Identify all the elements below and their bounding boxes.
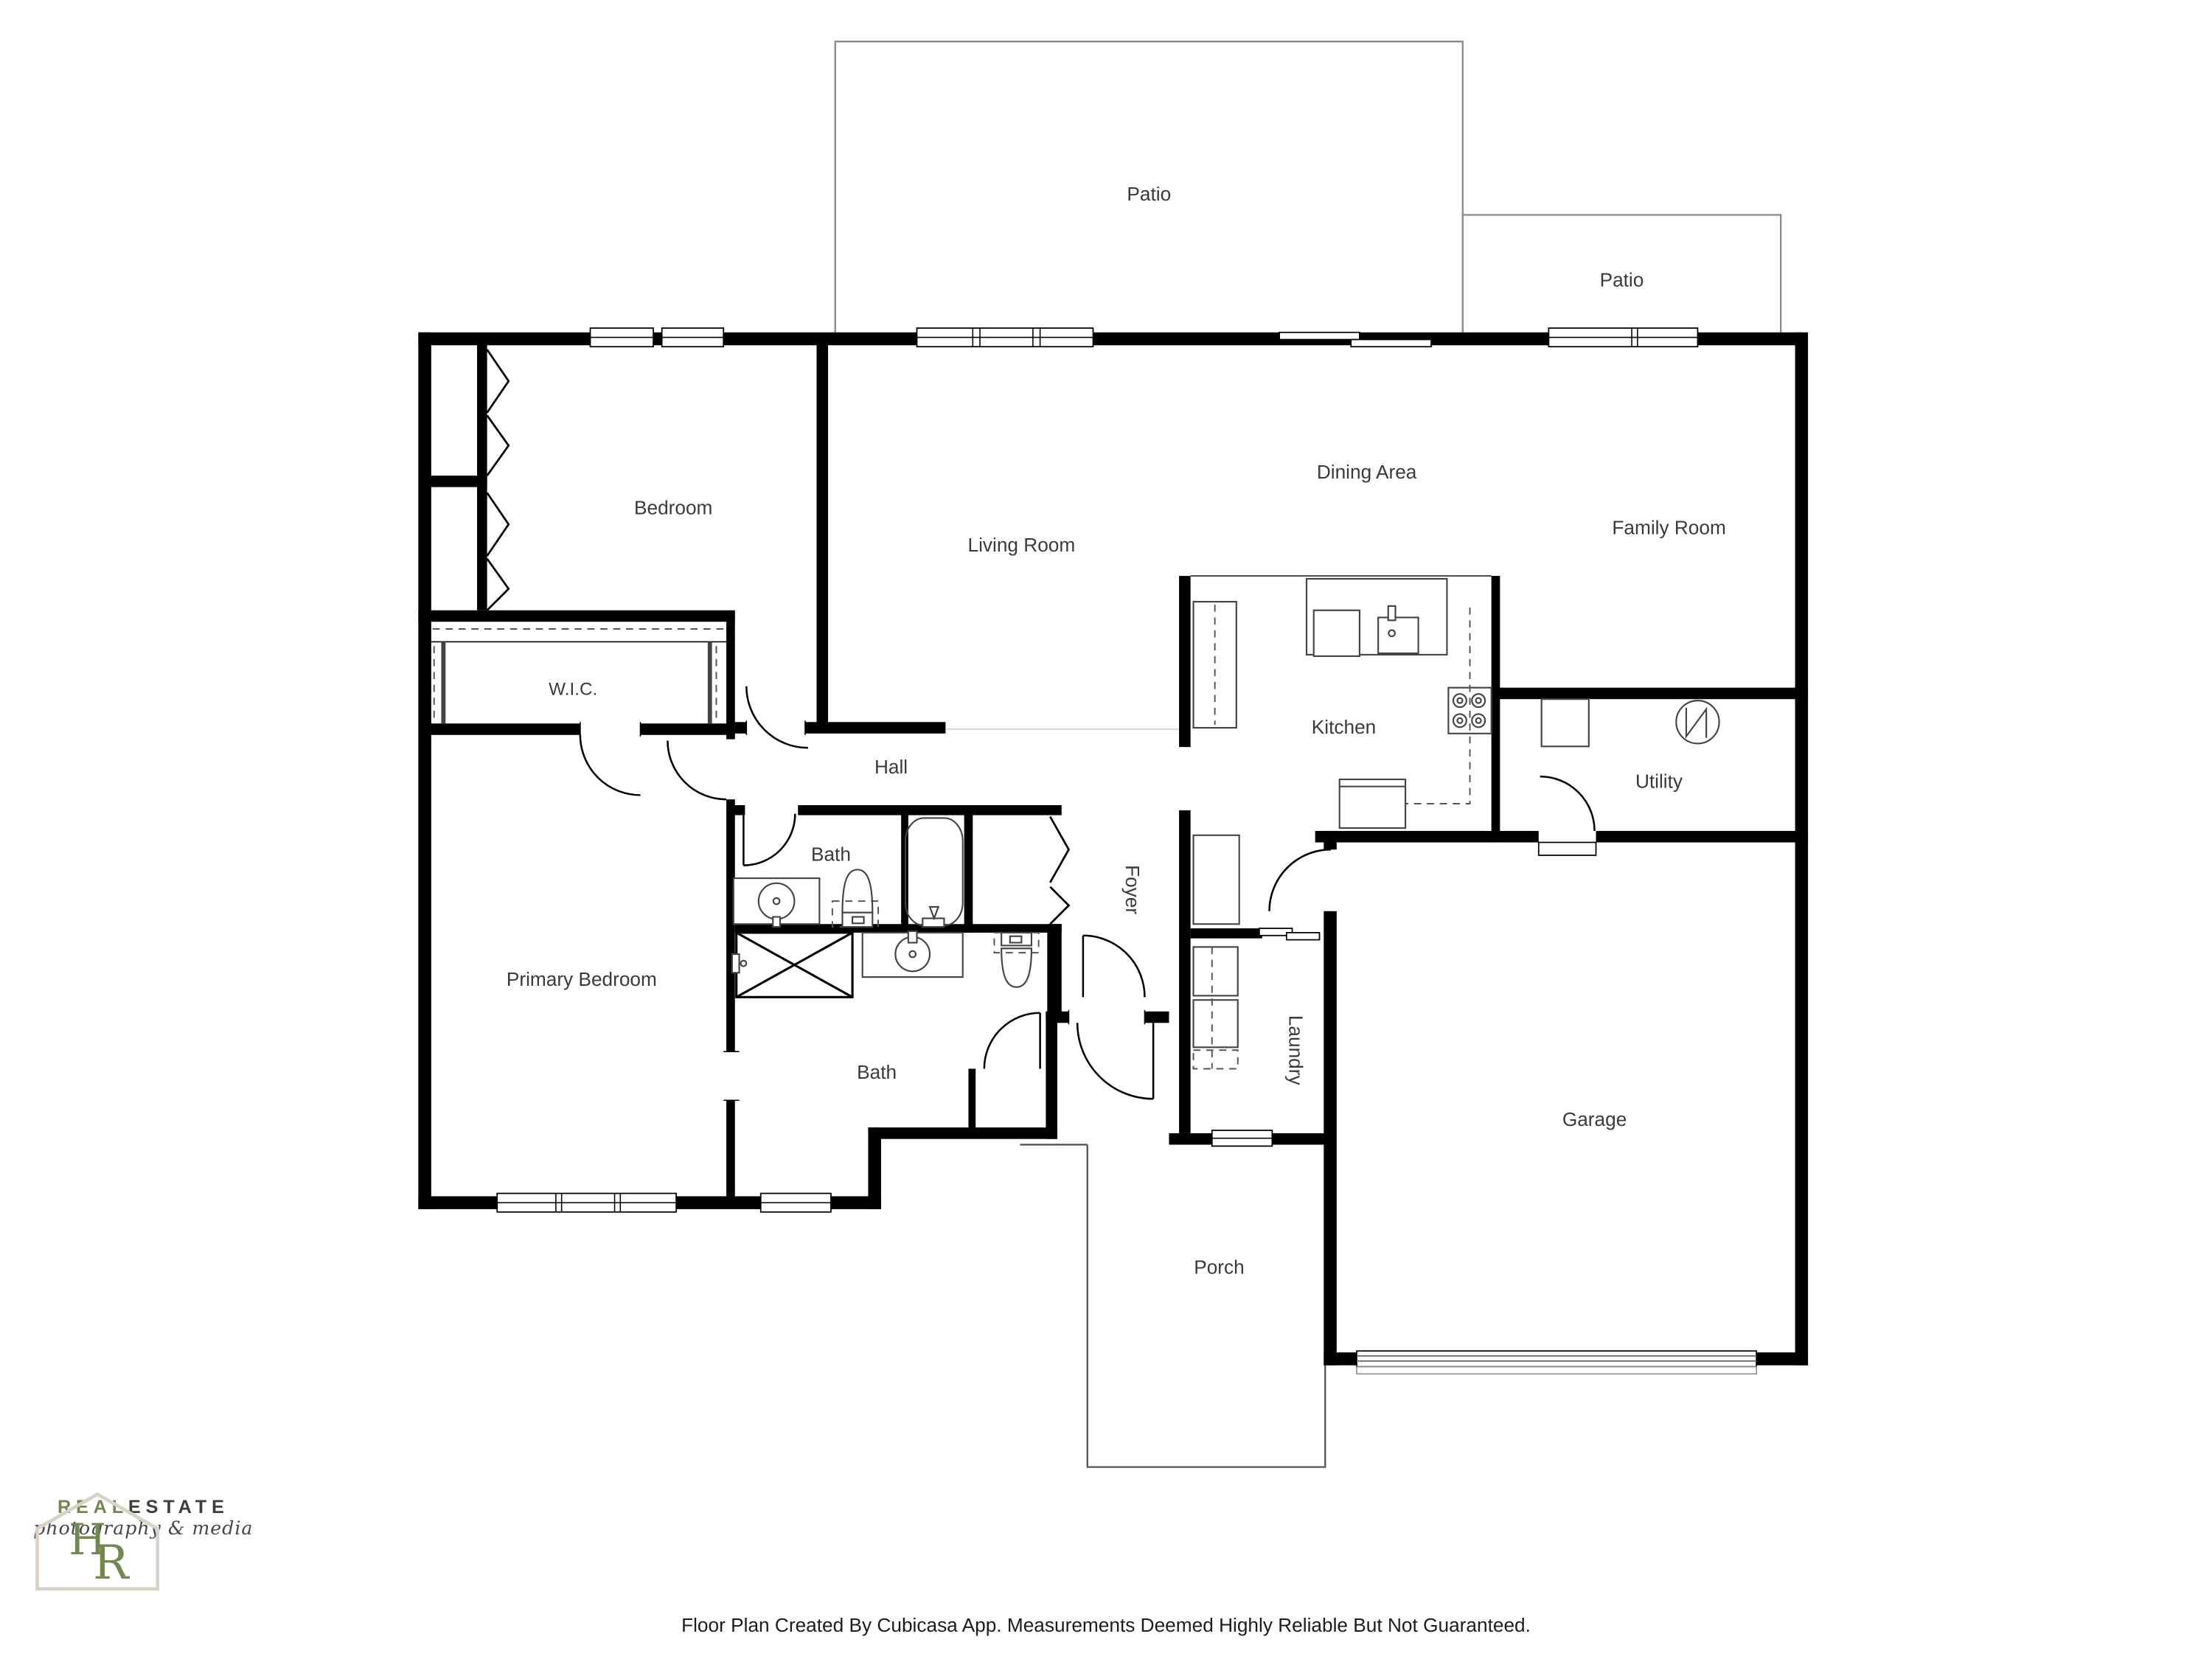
- bath1-door-opening: [745, 804, 798, 816]
- washer: [1194, 947, 1238, 995]
- kitchen-lower-cabinet: [1194, 835, 1239, 924]
- bedroom-door-opening: [746, 720, 805, 734]
- label-wic: W.I.C.: [549, 679, 597, 699]
- foyer-door-arc: [1083, 936, 1145, 998]
- wall-wic-right: [726, 616, 735, 733]
- ensuite-opening: [723, 1051, 737, 1100]
- patio-outlines: [835, 41, 1781, 338]
- interior-walls: [418, 344, 1262, 1197]
- label-living-room: Living Room: [967, 534, 1075, 556]
- wic-details: [430, 629, 726, 723]
- hall-bath-fixtures: [734, 818, 963, 927]
- bath1-door-arc: [743, 814, 795, 866]
- label-porch: Porch: [1194, 1256, 1245, 1278]
- wall-utility-top: [1492, 688, 1808, 700]
- shower: [732, 933, 852, 997]
- front-door-opening: [1068, 1010, 1144, 1024]
- wall-left: [418, 333, 431, 1209]
- label-patio-right: Patio: [1600, 269, 1644, 291]
- nook-door-arc: [984, 1013, 1040, 1069]
- wall-nook-small: [968, 1068, 975, 1133]
- logo-house-icon: H R: [29, 1490, 167, 1593]
- floor-plan-page: Patio Patio Bedroom Living Room Dining A…: [0, 0, 2212, 1659]
- bedroom-closet-door-2: [487, 415, 509, 476]
- bedroom-window-1: [591, 328, 653, 347]
- bath1-vanity: [734, 878, 820, 927]
- floor-plan-drawing: Patio Patio Bedroom Living Room Dining A…: [0, 0, 2212, 1659]
- foyer-closet-door-1: [1050, 817, 1068, 883]
- wall-right: [1795, 333, 1808, 1366]
- wall-step: [868, 1127, 880, 1209]
- wic-wall-left-thin: [441, 641, 445, 723]
- bathtub: [905, 818, 963, 927]
- hvac-unit-icon: [1676, 700, 1719, 743]
- wall-mid-bottom: [868, 1127, 1057, 1139]
- porch-edge: [1088, 1144, 1326, 1467]
- label-garage: Garage: [1562, 1108, 1627, 1130]
- front-door-arc: [1077, 1023, 1153, 1099]
- utility-door-arc: [1540, 776, 1595, 831]
- brand-logo: H R REALESTATE photography & media: [29, 1490, 258, 1540]
- wic-door-arc: [580, 735, 641, 796]
- bedroom-closet-door-3: [487, 493, 509, 555]
- logo-monogram-r: R: [93, 1535, 130, 1590]
- wall-bath1-right: [964, 814, 973, 933]
- kitchen-fixtures: [1191, 576, 1492, 924]
- wall-kitchen-right: [1492, 576, 1500, 842]
- dishwasher: [1314, 611, 1360, 656]
- label-laundry: Laundry: [1285, 1015, 1307, 1086]
- bedroom-closet-door-4: [487, 559, 509, 611]
- laundry-window: [1212, 1130, 1273, 1146]
- label-family-room: Family Room: [1612, 517, 1725, 539]
- garage-entry-opening: [1321, 849, 1339, 911]
- wall-closet-divider: [430, 476, 487, 487]
- bedroom-closet-door-1: [487, 349, 509, 412]
- utility-door-leaf: [1539, 842, 1596, 855]
- label-hall: Hall: [874, 756, 908, 778]
- wall-kitchen-left-upper: [1179, 576, 1191, 746]
- closet-doors: [487, 349, 1069, 924]
- primary-bath-fixtures: [732, 931, 1039, 997]
- wall-nook-right: [1047, 924, 1061, 1014]
- wic-wall-right-thin: [708, 641, 712, 723]
- living-window: [917, 328, 1093, 347]
- utility-fixtures: [1542, 699, 1719, 746]
- laundry-fixtures: [1194, 947, 1238, 1068]
- bath2-window: [761, 1194, 831, 1212]
- utility-door-opening: [1539, 829, 1596, 844]
- wic-door-opening: [580, 722, 641, 736]
- garage-door: [1357, 1351, 1756, 1374]
- label-patio-top: Patio: [1127, 183, 1171, 205]
- wall-foyer-laundry: [1179, 811, 1191, 1133]
- wall-alcove-left: [1046, 1012, 1057, 1139]
- label-dining-area: Dining Area: [1317, 461, 1417, 483]
- label-primary-bedroom: Primary Bedroom: [507, 968, 657, 990]
- bedroom-door-arc: [746, 686, 808, 748]
- label-bath-lower: Bath: [857, 1061, 897, 1083]
- label-kitchen: Kitchen: [1312, 716, 1376, 738]
- wall-bedroom-bottom: [418, 611, 734, 622]
- kitchen-pass-opening: [1179, 746, 1191, 810]
- primary-window: [497, 1194, 676, 1212]
- label-bath-hall: Bath: [811, 844, 851, 866]
- label-utility: Utility: [1635, 771, 1683, 793]
- bath2-vanity: [863, 931, 963, 977]
- label-foyer: Foyer: [1121, 865, 1144, 914]
- footer-disclaimer: Floor Plan Created By Cubicasa App. Meas…: [0, 1615, 2212, 1636]
- kitchen-peninsula: [1340, 779, 1405, 828]
- wall-bath-divider: [735, 924, 1062, 933]
- bath1-toilet: [832, 869, 878, 927]
- water-heater-box: [1542, 699, 1589, 746]
- porch-outline: [1020, 1144, 1325, 1467]
- label-bedroom: Bedroom: [634, 497, 712, 519]
- wall-laundry-top: [1191, 928, 1262, 939]
- family-window: [1548, 328, 1697, 347]
- bedroom-window-2: [662, 328, 724, 347]
- foyer-closet-door-2: [1050, 887, 1068, 925]
- laundry-dashed-box: [1194, 1050, 1238, 1068]
- primary-door-arc: [667, 741, 726, 800]
- laundry-slider-panel-2: [1287, 933, 1320, 940]
- wall-bedroom-living: [817, 344, 829, 732]
- primary-door-opening: [725, 740, 737, 800]
- dryer: [1194, 1000, 1238, 1047]
- bath2-toilet: [994, 933, 1038, 987]
